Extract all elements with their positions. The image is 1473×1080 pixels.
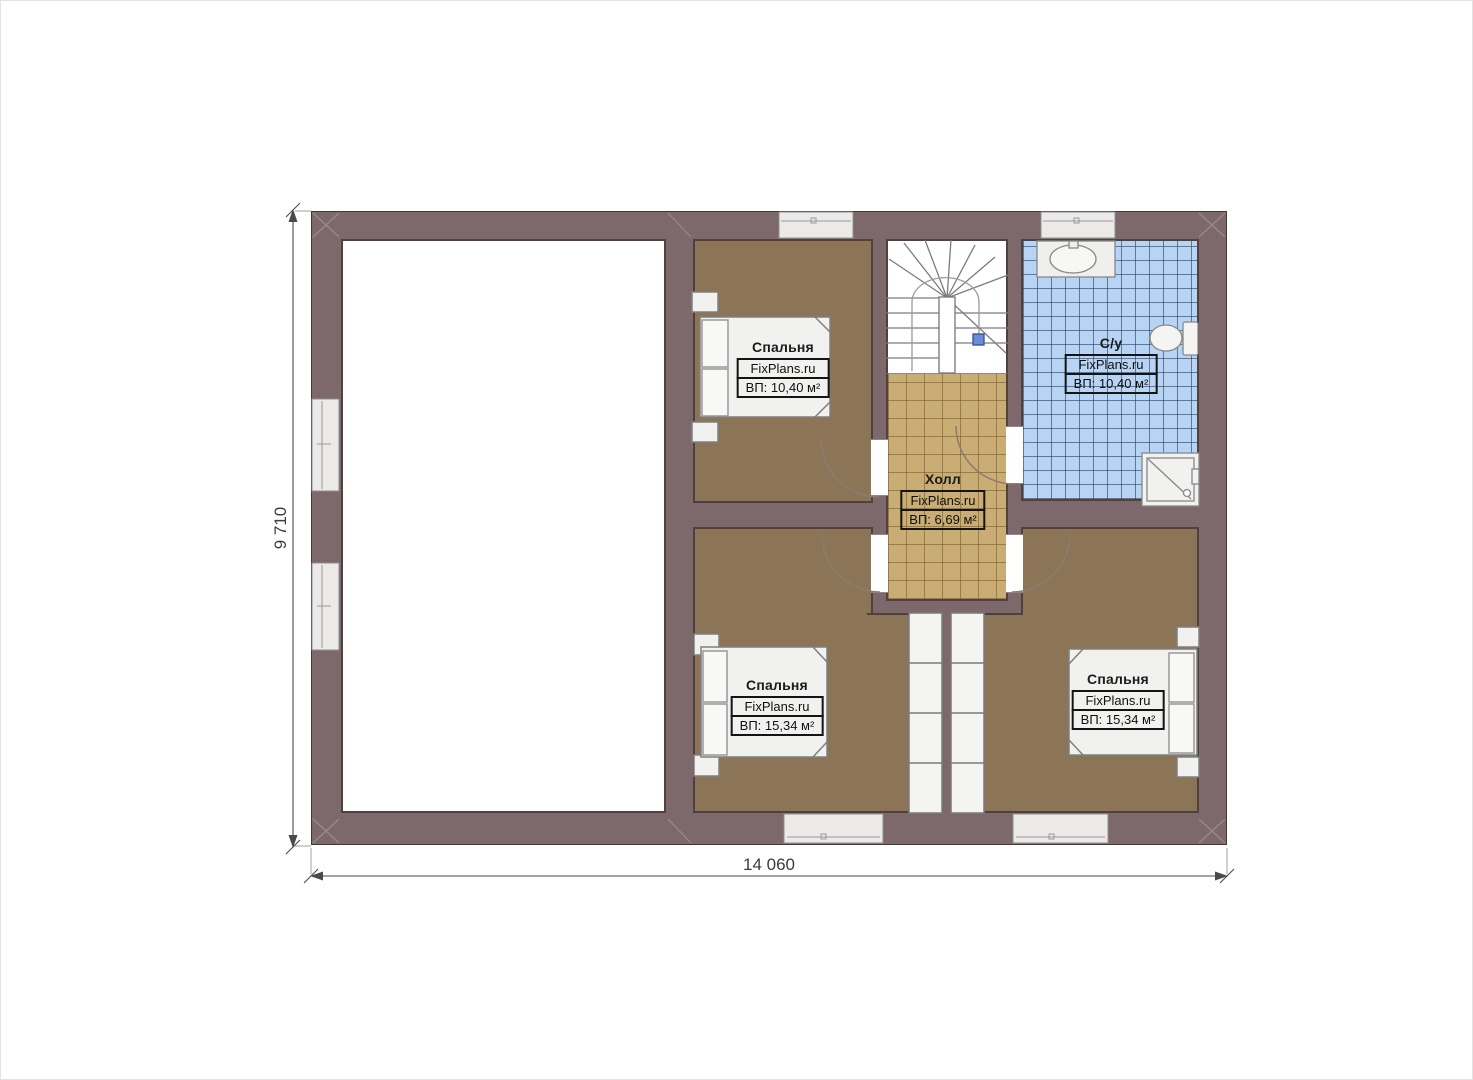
label-boxes: FixPlans.ru ВП: 10,40 м² [1065, 354, 1158, 394]
door-opening-bedroom-bottom-right [1006, 534, 1023, 593]
room-label-hall: Холл FixPlans.ru ВП: 6,69 м² [900, 471, 985, 530]
door-opening-bedroom-bottom-left [871, 534, 888, 593]
room-name: Спальня [752, 339, 814, 355]
room-stairwell [886, 239, 1008, 373]
area-box: ВП: 10,40 м² [737, 377, 830, 398]
room-label-bedroom-top: Спальня FixPlans.ru ВП: 10,40 м² [737, 339, 830, 398]
room-label-bedroom-bottom-right: Спальня FixPlans.ru ВП: 15,34 м² [1072, 671, 1165, 730]
label-boxes: FixPlans.ru ВП: 15,34 м² [731, 696, 824, 736]
room-name: С/у [1100, 335, 1122, 351]
label-boxes: FixPlans.ru ВП: 15,34 м² [1072, 690, 1165, 730]
room-name: Спальня [1087, 671, 1149, 687]
area-box: ВП: 6,69 м² [900, 509, 985, 530]
dimension-height-label: 9 710 [271, 496, 291, 560]
room-empty-left [341, 239, 666, 813]
dimension-width-label: 14 060 [729, 855, 809, 875]
door-opening-bathroom [1006, 426, 1023, 484]
door-opening-bedroom-top [871, 439, 888, 496]
label-boxes: FixPlans.ru ВП: 10,40 м² [737, 358, 830, 398]
room-label-bathroom: С/у FixPlans.ru ВП: 10,40 м² [1065, 335, 1158, 394]
floor-extension-left [867, 613, 909, 813]
area-box: ВП: 15,34 м² [731, 715, 824, 736]
area-box: ВП: 10,40 м² [1065, 373, 1158, 394]
room-name: Холл [925, 471, 961, 487]
label-boxes: FixPlans.ru ВП: 6,69 м² [900, 490, 985, 530]
brand-box: FixPlans.ru [731, 696, 824, 717]
brand-box: FixPlans.ru [737, 358, 830, 379]
brand-box: FixPlans.ru [1065, 354, 1158, 375]
brand-box: FixPlans.ru [900, 490, 985, 511]
brand-box: FixPlans.ru [1072, 690, 1165, 711]
room-bedroom-bottom-right [1021, 527, 1199, 813]
room-name: Спальня [746, 677, 808, 693]
room-label-bedroom-bottom-left: Спальня FixPlans.ru ВП: 15,34 м² [731, 677, 824, 736]
room-bedroom-bottom-left [693, 527, 873, 813]
floor-plan-canvas: Спальня FixPlans.ru ВП: 10,40 м² С/у Fix… [0, 0, 1473, 1080]
area-box: ВП: 15,34 м² [1072, 709, 1165, 730]
floor-extension-right [984, 613, 1023, 813]
